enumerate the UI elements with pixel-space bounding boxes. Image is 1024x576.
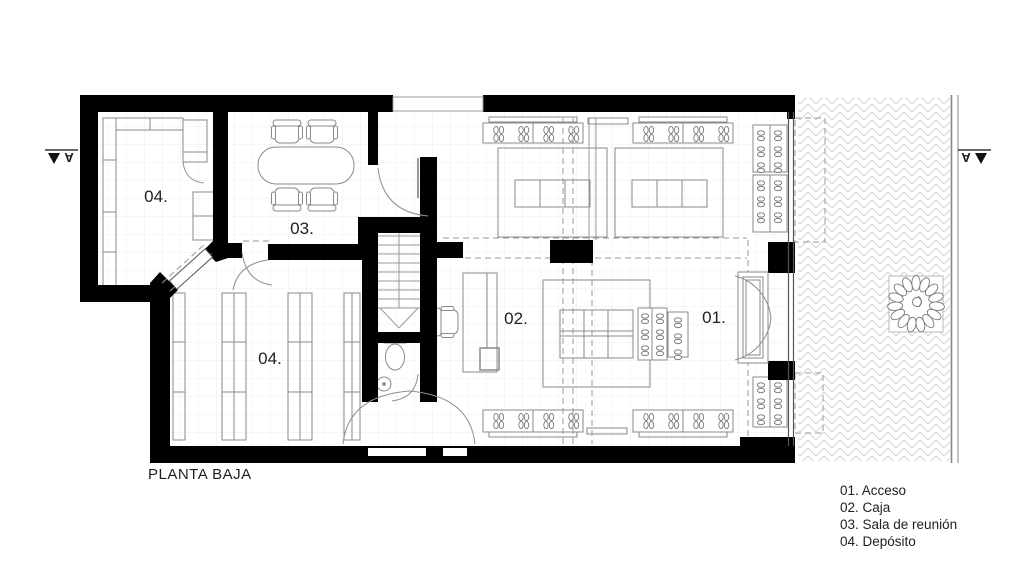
top-window <box>393 97 483 111</box>
legend-item: 02. Caja <box>840 500 891 515</box>
shoe-shelf-right-1 <box>753 125 787 173</box>
section-marker-left: A <box>45 150 78 165</box>
section-triangle-icon <box>48 153 60 164</box>
office-chair-icon <box>435 307 458 338</box>
room-label-04-lower: 04. <box>258 349 282 368</box>
shoe-bench-1 <box>638 308 667 360</box>
legend-item: 01. Acceso <box>840 483 906 498</box>
page-title: PLANTA BAJA <box>148 466 252 483</box>
chair-icon <box>272 188 303 211</box>
legend: 01. Acceso 02. Caja 03. Sala de reunión … <box>840 483 957 549</box>
section-letter: A <box>961 150 971 165</box>
section-marker-right: A <box>958 150 991 165</box>
bottom-wall-slot <box>443 448 467 456</box>
chair-icon <box>307 188 338 211</box>
legend-item: 03. Sala de reunión <box>840 517 957 532</box>
exterior-cutout <box>80 302 150 446</box>
chair-icon <box>307 120 338 143</box>
room-label-02: 02. <box>504 309 528 328</box>
legend-item: 04. Depósito <box>840 534 916 549</box>
floor-plan-drawing: 04. 03. 04. 02. 01. A A PLANTA BAJA 01. … <box>0 0 1024 576</box>
floor-plan-canvas: 04. 03. 04. 02. 01. A A PLANTA BAJA 01. … <box>0 0 1024 576</box>
section-letter: A <box>64 150 74 165</box>
bottom-wall-slot <box>368 448 426 456</box>
chair-icon <box>272 120 303 143</box>
storefront-glazing <box>789 112 794 446</box>
tree-icon <box>887 276 945 333</box>
room-label-03: 03. <box>290 219 314 238</box>
room-label-01: 01. <box>702 308 726 327</box>
shoe-shelf-right-2 <box>753 175 787 232</box>
property-line <box>952 95 959 463</box>
meeting-table <box>258 147 354 184</box>
room-label-04-upper: 04. <box>144 187 168 206</box>
shoe-shelf-right-3 <box>753 377 787 427</box>
entrance-door <box>735 272 771 363</box>
section-triangle-icon <box>975 153 987 164</box>
shoe-bench-2 <box>668 312 688 360</box>
sink-icon <box>377 377 391 391</box>
